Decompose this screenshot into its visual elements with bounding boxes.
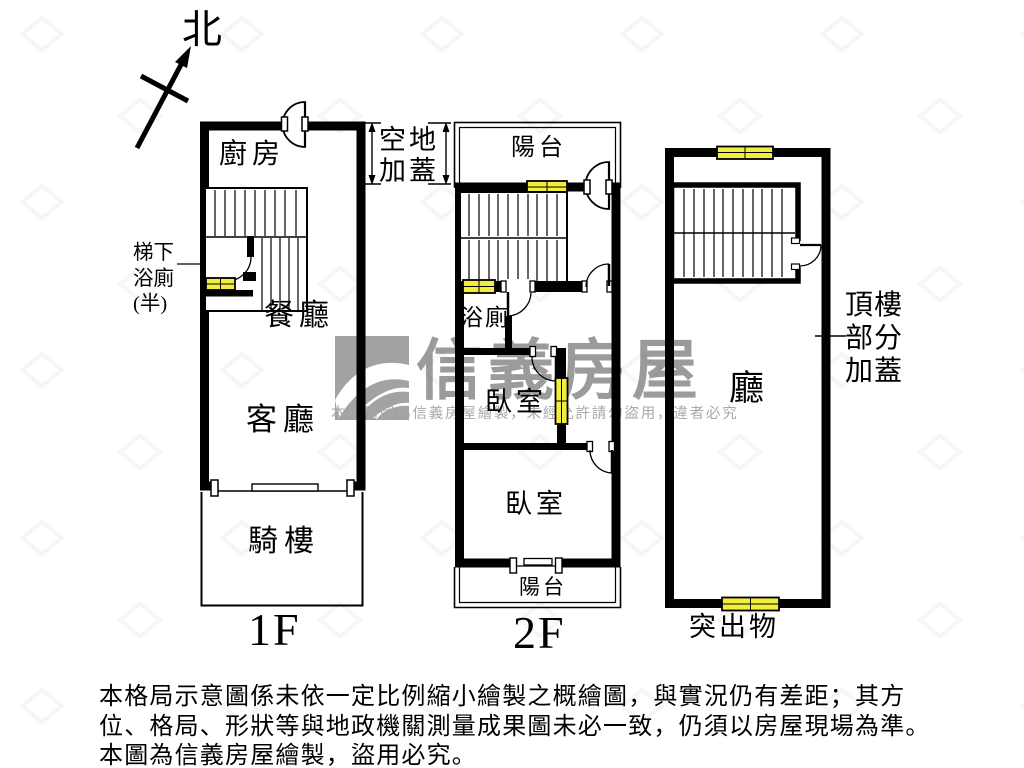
disclaimer-line1: 本格局示意圖係未依一定比例縮小繪製之概繪圖，與實況仍有差距；其方 — [99, 683, 931, 713]
disclaimer-line2: 位、格局、形狀等與地政機關測量成果圖未必一致，仍須以房屋現場為準。 — [99, 713, 931, 743]
room-label-kitchen: 廚房 — [219, 141, 285, 169]
room-label-balcony-bottom: 陽台 — [519, 577, 567, 598]
disclaimer-line3: 本圖為信義房屋繪製，盜用必究。 — [99, 742, 931, 768]
label-layer: 北 廚房 梯下 浴廁 (半) 餐廳 客廳 騎樓 1F 空地 加蓋 陽台 浴廁 臥… — [0, 0, 1024, 768]
open-area-note-line1: 空地 — [379, 125, 439, 156]
under-stair-note-line3: (半) — [133, 292, 174, 318]
floorplan-page: 信義房屋 本格局圖為信義房屋繪製，未經允許請勿盜用，違者必究 — [0, 0, 1024, 768]
room-label-bathroom: 浴廁 — [460, 306, 510, 329]
rooftop-note-line1: 頂樓 — [845, 289, 903, 322]
room-label-hall: 廳 — [729, 371, 764, 406]
open-area-note: 空地 加蓋 — [379, 125, 439, 187]
room-label-bedroom-upper: 臥室 — [485, 389, 547, 416]
under-stair-note-line2: 浴廁 — [133, 267, 174, 293]
floor2-label: 2F — [513, 610, 566, 656]
room-label-dining: 餐廳 — [264, 301, 334, 331]
north-label: 北 — [182, 10, 222, 50]
open-area-note-line2: 加蓋 — [379, 156, 439, 187]
room-label-living: 客廳 — [246, 404, 320, 435]
room-label-protrusion: 突出物 — [689, 614, 779, 641]
disclaimer-text: 本格局示意圖係未依一定比例縮小繪製之概繪圖，與實況仍有差距；其方 位、格局、形狀… — [99, 683, 931, 768]
under-stair-note-line1: 梯下 — [133, 241, 174, 267]
rooftop-note-line2: 部分 — [845, 322, 903, 355]
room-label-bedroom-lower: 臥室 — [505, 491, 567, 518]
rooftop-note-line3: 加蓋 — [845, 355, 903, 388]
room-label-arcade: 騎樓 — [248, 527, 320, 557]
room-label-balcony-top: 陽台 — [511, 136, 567, 160]
under-stair-note: 梯下 浴廁 (半) — [133, 241, 174, 318]
floor1-label: 1F — [248, 607, 301, 653]
rooftop-note: 頂樓 部分 加蓋 — [845, 289, 903, 388]
